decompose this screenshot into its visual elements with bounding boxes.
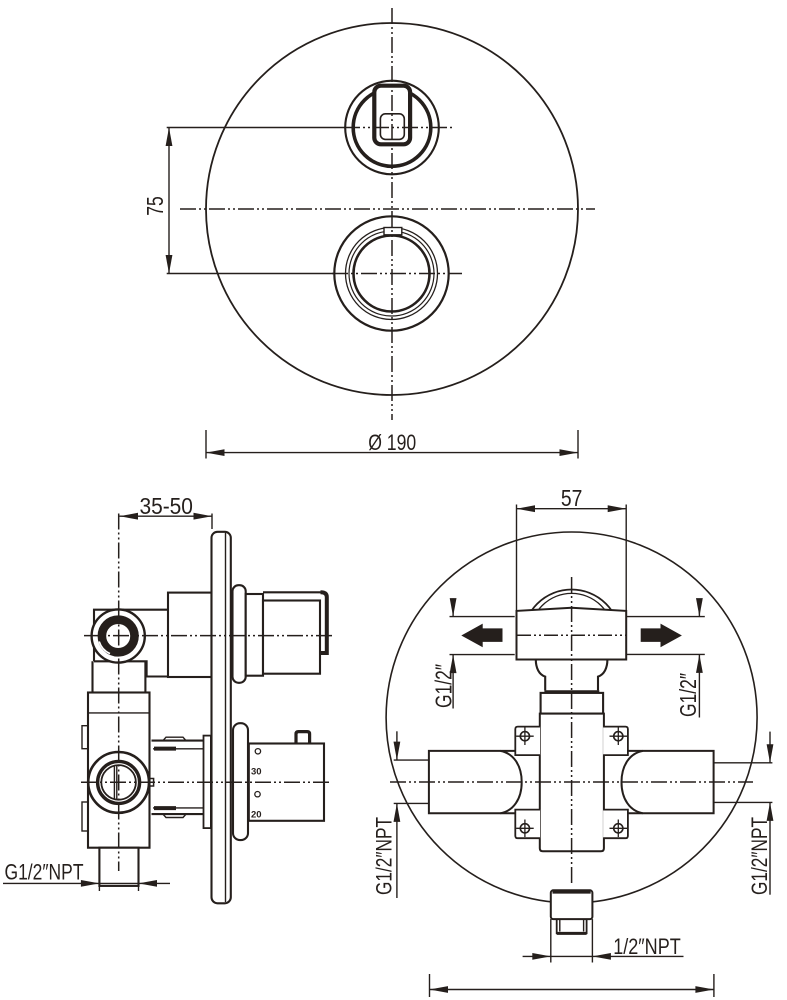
svg-text:75: 75	[142, 196, 168, 216]
svg-text:G1/2″NPT: G1/2″NPT	[5, 860, 84, 885]
svg-text:G1/2″NPT: G1/2″NPT	[747, 817, 772, 895]
svg-text:Ø 190: Ø 190	[368, 430, 416, 455]
svg-text:57: 57	[561, 485, 583, 511]
svg-text:G1/2″NPT: G1/2″NPT	[372, 817, 397, 895]
svg-text:35-50: 35-50	[139, 493, 193, 519]
svg-text:30: 30	[251, 767, 262, 778]
svg-text:20: 20	[251, 810, 262, 821]
svg-text:1/2″NPT: 1/2″NPT	[613, 934, 681, 959]
svg-text:G1/2″: G1/2″	[430, 664, 456, 708]
svg-text:G1/2″: G1/2″	[675, 673, 701, 717]
